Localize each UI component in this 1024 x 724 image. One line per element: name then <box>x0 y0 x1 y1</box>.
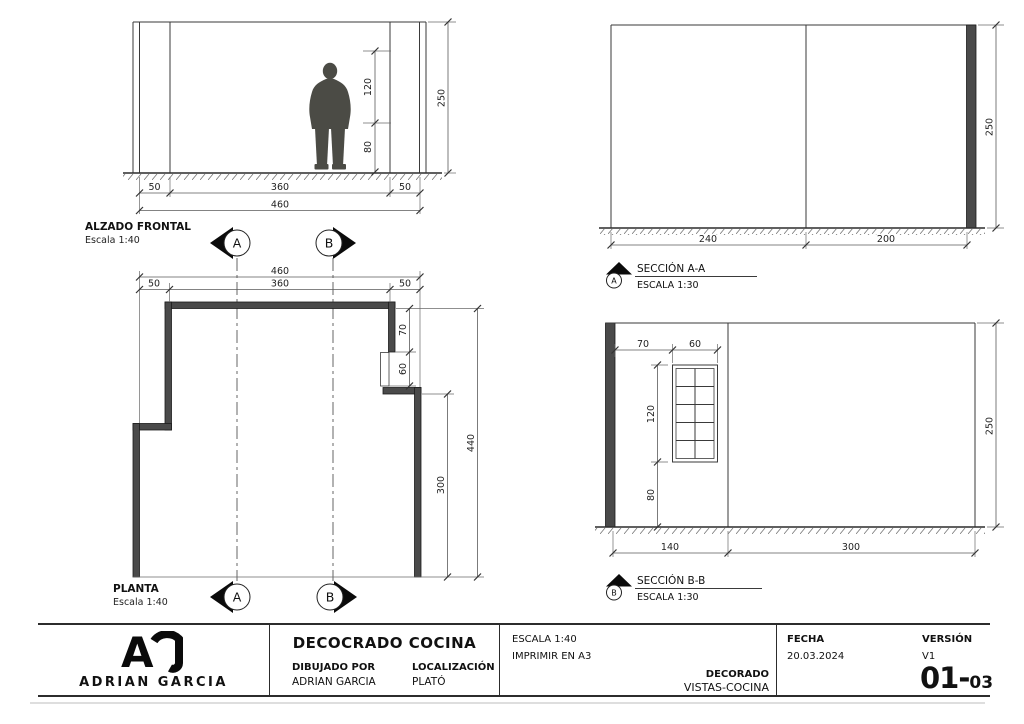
dim-label: 460 <box>271 200 289 211</box>
dim-label: 240 <box>699 234 717 245</box>
dim-label: 140 <box>661 542 679 553</box>
dim-label: 60 <box>689 339 701 350</box>
marker-letter-a: A <box>233 590 242 605</box>
date-label: FECHA <box>787 634 916 645</box>
section-scale: ESCALA 1:30 <box>637 280 699 291</box>
dim-label: 360 <box>271 279 289 290</box>
location-value: PLATÓ <box>412 676 495 688</box>
dim-label: 360 <box>271 182 289 193</box>
dim-aa-height: 250 <box>978 22 1004 232</box>
person-silhouette <box>309 63 350 170</box>
version-label: VERSIÓN <box>922 634 990 645</box>
dim-label: 60 <box>398 363 409 375</box>
scale-cell: ESCALA 1:40 IMPRIMIR EN A3 DECORADO VIST… <box>500 625 777 695</box>
view-title: ALZADO FRONTAL <box>85 221 191 233</box>
section-wall <box>967 25 977 228</box>
view-scale: Escala 1:40 <box>85 235 140 246</box>
seccion-aa-label: A SECCIÓN A-A ESCALA 1:30 <box>606 262 757 291</box>
dim-label: 300 <box>436 476 447 494</box>
date-cell: FECHA 20.03.2024 <box>777 625 916 695</box>
seccion-bb-label: B SECCIÓN B-B ESCALA 1:30 <box>606 574 762 603</box>
section-title: SECCIÓN A-A <box>637 262 706 275</box>
dim-label: 70 <box>398 324 409 336</box>
ground-hatch <box>123 174 442 180</box>
logo-name: ADRIAN GARCIA <box>79 675 228 690</box>
drawn-by-label: DIBUJADO POR <box>292 662 412 673</box>
print-note: IMPRIMIR EN A3 <box>512 651 776 662</box>
set-name: VISTAS-COCINA <box>684 681 769 694</box>
dim-label: 70 <box>637 339 649 350</box>
marker-letter: B <box>611 589 617 598</box>
section-cut-markers-top: A B <box>210 227 356 259</box>
dim-label: 200 <box>877 234 895 245</box>
dim-label: 50 <box>399 182 411 193</box>
project-title: DECOCRADO COCINA <box>270 634 499 652</box>
marker-letter-b: B <box>326 590 335 605</box>
title-block: A ADRIAN GARCIA DECOCRADO COCINA DIBUJAD… <box>38 623 990 697</box>
dim-label: 250 <box>985 118 996 136</box>
dim-person-heights: 120 80 <box>363 48 391 176</box>
marker-letter: A <box>611 277 617 286</box>
logo-cell: A ADRIAN GARCIA <box>38 625 270 695</box>
sheet-number-prefix: 01- <box>920 661 969 695</box>
dim-label: 50 <box>148 182 160 193</box>
drawing-sheet: 120 80 250 50 360 50 <box>0 0 1024 724</box>
dim-label: 120 <box>363 78 374 96</box>
dim-bb-height: 250 <box>977 320 1004 531</box>
date-value: 20.03.2024 <box>787 651 916 662</box>
logo-letter-a: A <box>121 631 154 673</box>
dim-bb-window-heights: 120 80 <box>646 362 668 531</box>
view-planta: 460 50 360 50 70 60 <box>113 258 484 608</box>
section-marker-icon <box>606 262 632 275</box>
sheet-number: 01-03 <box>920 661 993 695</box>
dim-label: 250 <box>985 417 996 435</box>
marker-letter-a: A <box>233 236 242 251</box>
scale-note: ESCALA 1:40 <box>512 634 776 645</box>
section-title: SECCIÓN B-B <box>637 574 705 587</box>
drawings-canvas: 120 80 250 50 360 50 <box>0 0 1024 724</box>
view-scale: Escala 1:40 <box>113 597 168 608</box>
dim-planta-depth: 300 440 <box>133 305 484 581</box>
dim-planta-opening: 70 60 <box>389 305 484 390</box>
door-opening <box>381 353 390 387</box>
view-alzado-frontal: 120 80 250 50 360 50 <box>85 19 456 247</box>
dim-label: 300 <box>842 542 860 553</box>
drawn-by-value: ADRIAN GARCIA <box>292 676 412 688</box>
dim-label: 250 <box>437 89 448 107</box>
dim-label: 440 <box>466 434 477 452</box>
dim-label: 50 <box>148 279 160 290</box>
view-seccion-aa: 240 200 250 A SECCIÓN A-A ESCALA 1:30 <box>599 22 1004 292</box>
dim-label: 120 <box>646 405 657 423</box>
section-cut-markers-bottom: A B <box>210 581 357 613</box>
sheet-number-suffix: 03 <box>969 673 993 693</box>
page-edge-shadow <box>30 702 985 704</box>
dim-bb-widths: 140 300 <box>610 531 979 557</box>
plan-walls <box>133 302 421 577</box>
view-title: PLANTA <box>113 583 160 595</box>
logo-letter-g-shape <box>154 634 179 669</box>
project-title-cell: DECOCRADO COCINA DIBUJADO POR ADRIAN GAR… <box>270 625 500 695</box>
version-cell: VERSIÓN V1 01-03 <box>916 625 990 695</box>
dim-bb-window-pos: 70 60 <box>612 339 722 363</box>
set-label: DECORADO <box>684 669 769 680</box>
ag-logo-icon: A <box>121 631 187 673</box>
ground-hatch <box>599 229 985 235</box>
view-seccion-bb: 70 60 120 80 250 <box>595 320 1004 604</box>
dim-label: 460 <box>271 266 289 277</box>
section-wall <box>606 323 616 527</box>
dim-alzado-widths: 50 360 50 460 <box>136 177 424 214</box>
dim-planta-widths: 460 50 360 50 <box>136 266 424 423</box>
window <box>673 365 718 462</box>
dim-alzado-height: 250 <box>428 19 456 177</box>
section-scale: ESCALA 1:30 <box>637 592 699 603</box>
section-marker-icon <box>606 574 632 587</box>
dim-label: 80 <box>363 141 374 153</box>
dim-label: 50 <box>399 279 411 290</box>
marker-letter-b: B <box>325 236 334 251</box>
ground-hatch <box>595 528 985 534</box>
location-label: LOCALIZACIÓN <box>412 662 495 673</box>
dim-label: 80 <box>646 489 657 501</box>
